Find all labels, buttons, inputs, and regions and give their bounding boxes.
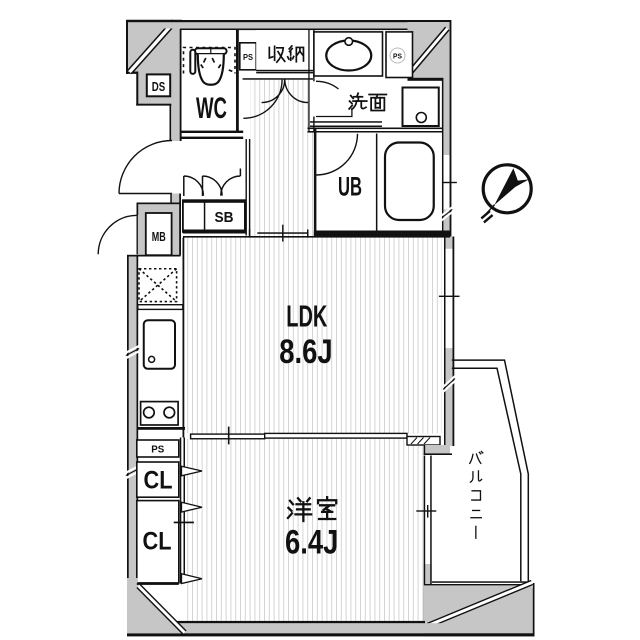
svg-text:LDK: LDK — [286, 299, 327, 334]
svg-text:PS: PS — [243, 53, 254, 62]
svg-text:UB: UB — [338, 172, 362, 202]
svg-text:8.6J: 8.6J — [279, 333, 332, 371]
svg-text:CL: CL — [144, 467, 173, 495]
svg-text:DS: DS — [152, 79, 166, 94]
svg-text:PS: PS — [393, 51, 402, 60]
svg-text:MB: MB — [152, 229, 166, 244]
svg-text:CL: CL — [143, 528, 172, 556]
svg-text:SB: SB — [215, 209, 234, 226]
svg-text:WC: WC — [196, 92, 227, 125]
svg-text:PS: PS — [151, 445, 164, 456]
svg-text:6.4J: 6.4J — [285, 524, 338, 562]
